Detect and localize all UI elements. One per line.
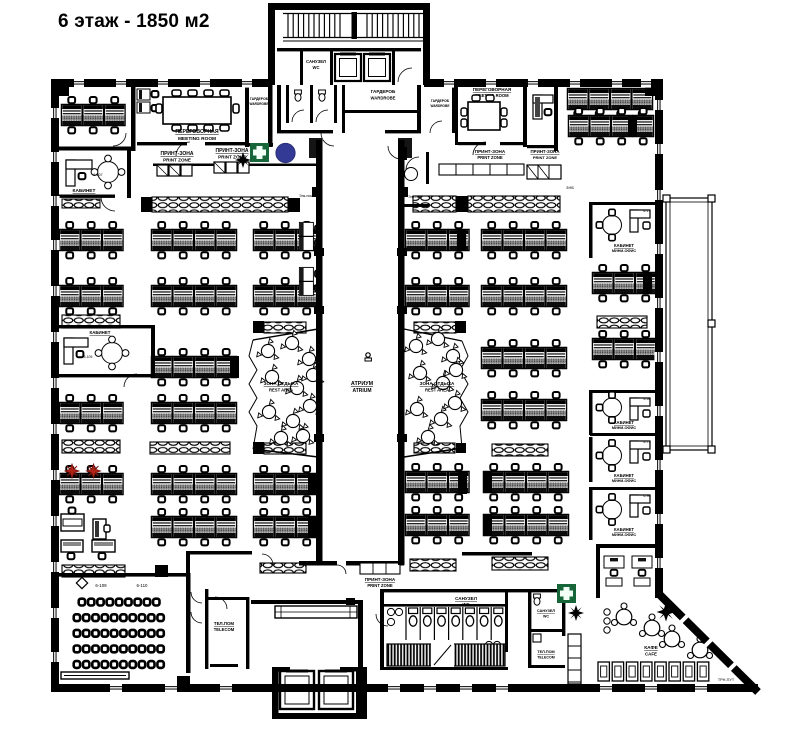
svg-text:6-207: 6-207 — [93, 173, 102, 177]
svg-text:МИНИ-ОФИС: МИНИ-ОФИС — [612, 533, 637, 537]
svg-text:САНУЗЕЛ: САНУЗЕЛ — [455, 596, 477, 601]
svg-text:Элк-пом: Элк-пом — [299, 194, 313, 198]
svg-text:ПЕРЕГОВОРНАЯ: ПЕРЕГОВОРНАЯ — [473, 87, 511, 92]
svg-text:КАБИНЕТ: КАБИНЕТ — [614, 420, 634, 425]
svg-text:6-66: 6-66 — [643, 397, 650, 401]
svg-text:ЗОНА ОТДЫХА: ЗОНА ОТДЫХА — [264, 381, 299, 386]
svg-text:WARDROBE: WARDROBE — [250, 102, 269, 106]
svg-text:МИНИ-ОФИС: МИНИ-ОФИС — [612, 426, 637, 430]
svg-text:6-17: 6-17 — [643, 209, 650, 213]
svg-text:ПРИНТ-ЗОНА: ПРИНТ-ЗОНА — [530, 149, 560, 154]
svg-text:6-110: 6-110 — [137, 583, 148, 588]
svg-text:САНУЗЕЛ: САНУЗЕЛ — [537, 609, 555, 613]
svg-text:ТЕЛ.ПОМ: ТЕЛ.ПОМ — [214, 621, 234, 626]
svg-text:КАБИНЕТ: КАБИНЕТ — [614, 527, 634, 532]
svg-text:ЗОНА ОТДЫХА: ЗОНА ОТДЫХА — [420, 381, 455, 386]
svg-text:ATRIUM: ATRIUM — [352, 388, 371, 394]
svg-text:TELECOM: TELECOM — [214, 627, 235, 632]
svg-text:ГАРДЕРОБ: ГАРДЕРОБ — [431, 99, 450, 103]
svg-text:КАФЕ: КАФЕ — [644, 645, 658, 651]
svg-text:CAFE: CAFE — [645, 652, 657, 657]
svg-text:WC: WC — [463, 602, 470, 607]
svg-text:ГАРДЕРОБ: ГАРДЕРОБ — [250, 97, 269, 101]
svg-text:PRINT ZONE: PRINT ZONE — [477, 155, 503, 160]
svg-text:MEETING ROOM: MEETING ROOM — [178, 136, 216, 142]
svg-text:PRINT ZONE: PRINT ZONE — [367, 583, 393, 588]
svg-text:WC: WC — [543, 615, 549, 619]
svg-text:КАБИНЕТ: КАБИНЕТ — [90, 330, 111, 335]
svg-text:ПРИНТ-ЗОНА: ПРИНТ-ЗОНА — [160, 151, 193, 157]
svg-text:Элк-пом: Элк-пом — [408, 195, 422, 199]
svg-text:REST AREA: REST AREA — [269, 388, 293, 393]
svg-text:ПРИНТ-ЗОНА: ПРИНТ-ЗОНА — [365, 577, 396, 582]
svg-text:6-75: 6-75 — [643, 440, 650, 444]
svg-text:МИНИ-ОФИС: МИНИ-ОФИС — [612, 249, 637, 253]
svg-text:TELECOM: TELECOM — [537, 656, 555, 660]
svg-text:WARDROBE: WARDROBE — [431, 104, 450, 108]
svg-text:REST AREA: REST AREA — [425, 388, 449, 393]
svg-text:КАБИНЕТ: КАБИНЕТ — [73, 188, 96, 194]
svg-text:КАБИНЕТ: КАБИНЕТ — [614, 473, 634, 478]
svg-text:6-90: 6-90 — [643, 494, 650, 498]
svg-text:ПЕРЕГОВОРНАЯ: ПЕРЕГОВОРНАЯ — [175, 129, 219, 135]
svg-text:PRINT ZONE: PRINT ZONE — [533, 155, 558, 160]
svg-text:WARDROBE: WARDROBE — [371, 96, 396, 101]
svg-text:КАБИНЕТ: КАБИНЕТ — [614, 243, 634, 248]
svg-text:ПРИНТ-ЗОНА: ПРИНТ-ЗОНА — [475, 149, 506, 154]
svg-text:АТРИУМ: АТРИУМ — [351, 381, 374, 387]
svg-text:6 этаж - 1850 м2: 6 этаж - 1850 м2 — [58, 11, 210, 32]
svg-text:6-109: 6-109 — [95, 583, 107, 588]
svg-text:ТРН-ПУТ: ТРН-ПУТ — [718, 678, 735, 682]
svg-text:WC: WC — [313, 65, 320, 70]
svg-text:PRINT ZONE: PRINT ZONE — [163, 158, 191, 163]
svg-text:ГАРДЕРОБ: ГАРДЕРОБ — [371, 89, 396, 94]
svg-text:6-105: 6-105 — [84, 355, 93, 359]
svg-text:ТЕЛ.ПОМ: ТЕЛ.ПОМ — [537, 650, 554, 654]
svg-text:ПРИНТ-ЗОНА: ПРИНТ-ЗОНА — [215, 148, 248, 154]
svg-text:ЗНБ: ЗНБ — [566, 185, 574, 190]
svg-text:МИНИ-ОФИС: МИНИ-ОФИС — [612, 479, 637, 483]
svg-text:САНУЗЕЛ: САНУЗЕЛ — [306, 59, 326, 64]
